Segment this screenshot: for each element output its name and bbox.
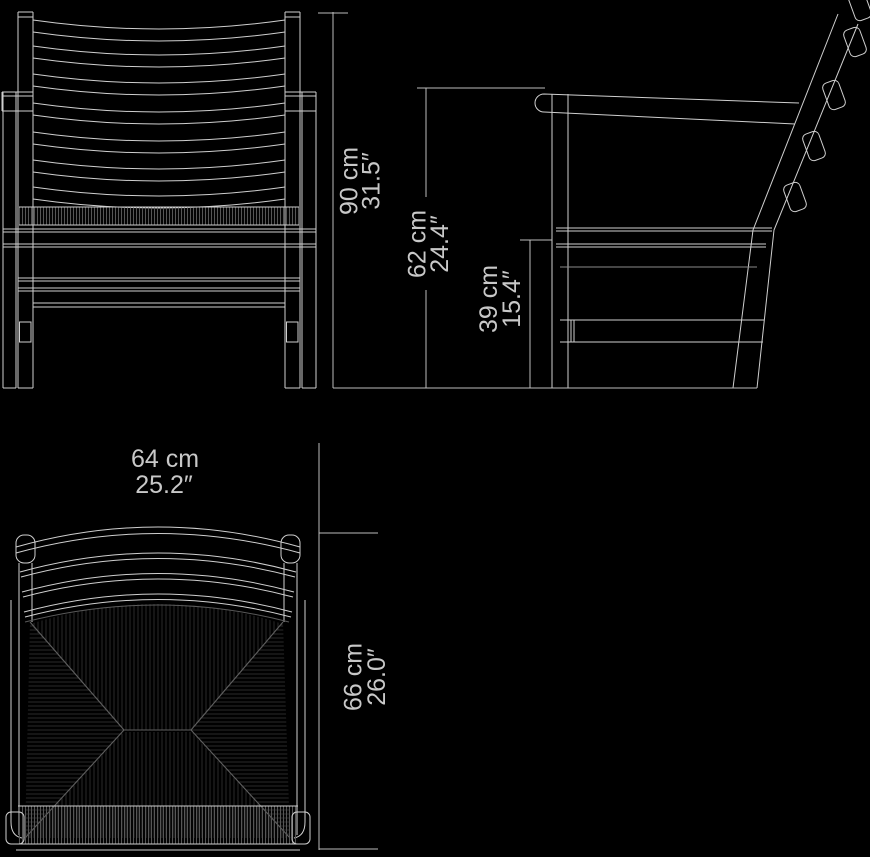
svg-text:15.4″: 15.4″ — [498, 270, 526, 328]
svg-text:31.5″: 31.5″ — [358, 152, 386, 210]
svg-text:26.0″: 26.0″ — [363, 648, 391, 706]
svg-text:64 cm: 64 cm — [131, 445, 199, 473]
svg-text:24.4″: 24.4″ — [426, 215, 454, 273]
svg-text:25.2″: 25.2″ — [135, 471, 193, 499]
